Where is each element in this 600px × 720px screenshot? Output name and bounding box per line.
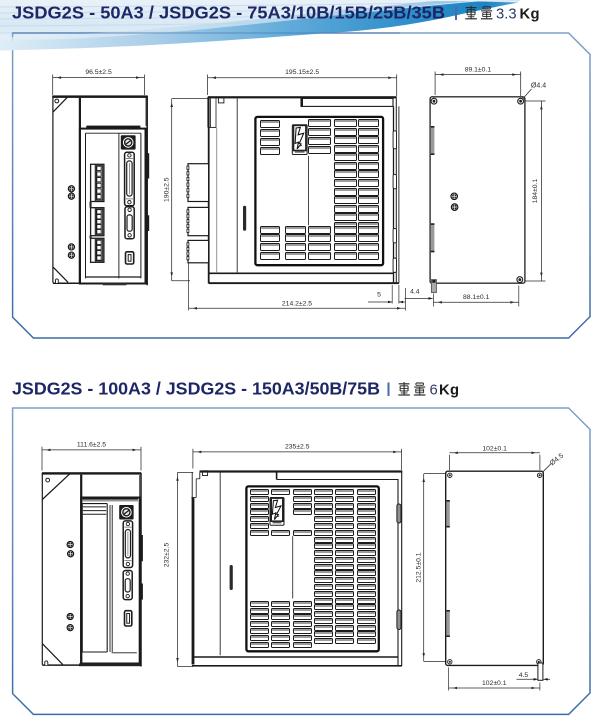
svg-text:184±0.1: 184±0.1 — [532, 179, 539, 204]
svg-text:190±2.5: 190±2.5 — [163, 177, 170, 202]
svg-text:235±2.5: 235±2.5 — [285, 444, 310, 451]
svg-text:Ø4.5: Ø4.5 — [549, 452, 565, 467]
svg-text:JSDG2S - 50A3 / JSDG2S - 75A3/: JSDG2S - 50A3 / JSDG2S - 75A3/10B/15B/25… — [12, 2, 445, 22]
svg-text:4.4: 4.4 — [410, 288, 420, 295]
svg-text:5: 5 — [377, 291, 381, 298]
svg-text:JSDG2S - 100A3 / JSDG2S - 150A: JSDG2S - 100A3 / JSDG2S - 150A3/50B/75B — [12, 379, 380, 399]
svg-text:Ø4.4: Ø4.4 — [531, 82, 546, 89]
svg-text:3.3: 3.3 — [496, 6, 517, 22]
svg-text:88.1±0.1: 88.1±0.1 — [463, 294, 490, 301]
svg-text:212.5±0.1: 212.5±0.1 — [416, 552, 423, 582]
svg-text:102±0.1: 102±0.1 — [482, 680, 507, 687]
svg-text:102±0.1: 102±0.1 — [482, 446, 507, 453]
svg-text:214.2±2.5: 214.2±2.5 — [282, 300, 312, 307]
svg-text:4.5: 4.5 — [519, 672, 529, 679]
svg-text:Kg: Kg — [439, 383, 459, 399]
svg-text:96.5±2.5: 96.5±2.5 — [85, 69, 112, 76]
svg-text:195.15±2.5: 195.15±2.5 — [285, 69, 319, 76]
svg-text:111.6±2.5: 111.6±2.5 — [77, 442, 106, 449]
svg-text:89.1±0.1: 89.1±0.1 — [465, 66, 492, 73]
svg-text:Kg: Kg — [520, 6, 540, 22]
svg-text:6: 6 — [430, 383, 438, 399]
svg-text:232±2.5: 232±2.5 — [164, 543, 171, 568]
